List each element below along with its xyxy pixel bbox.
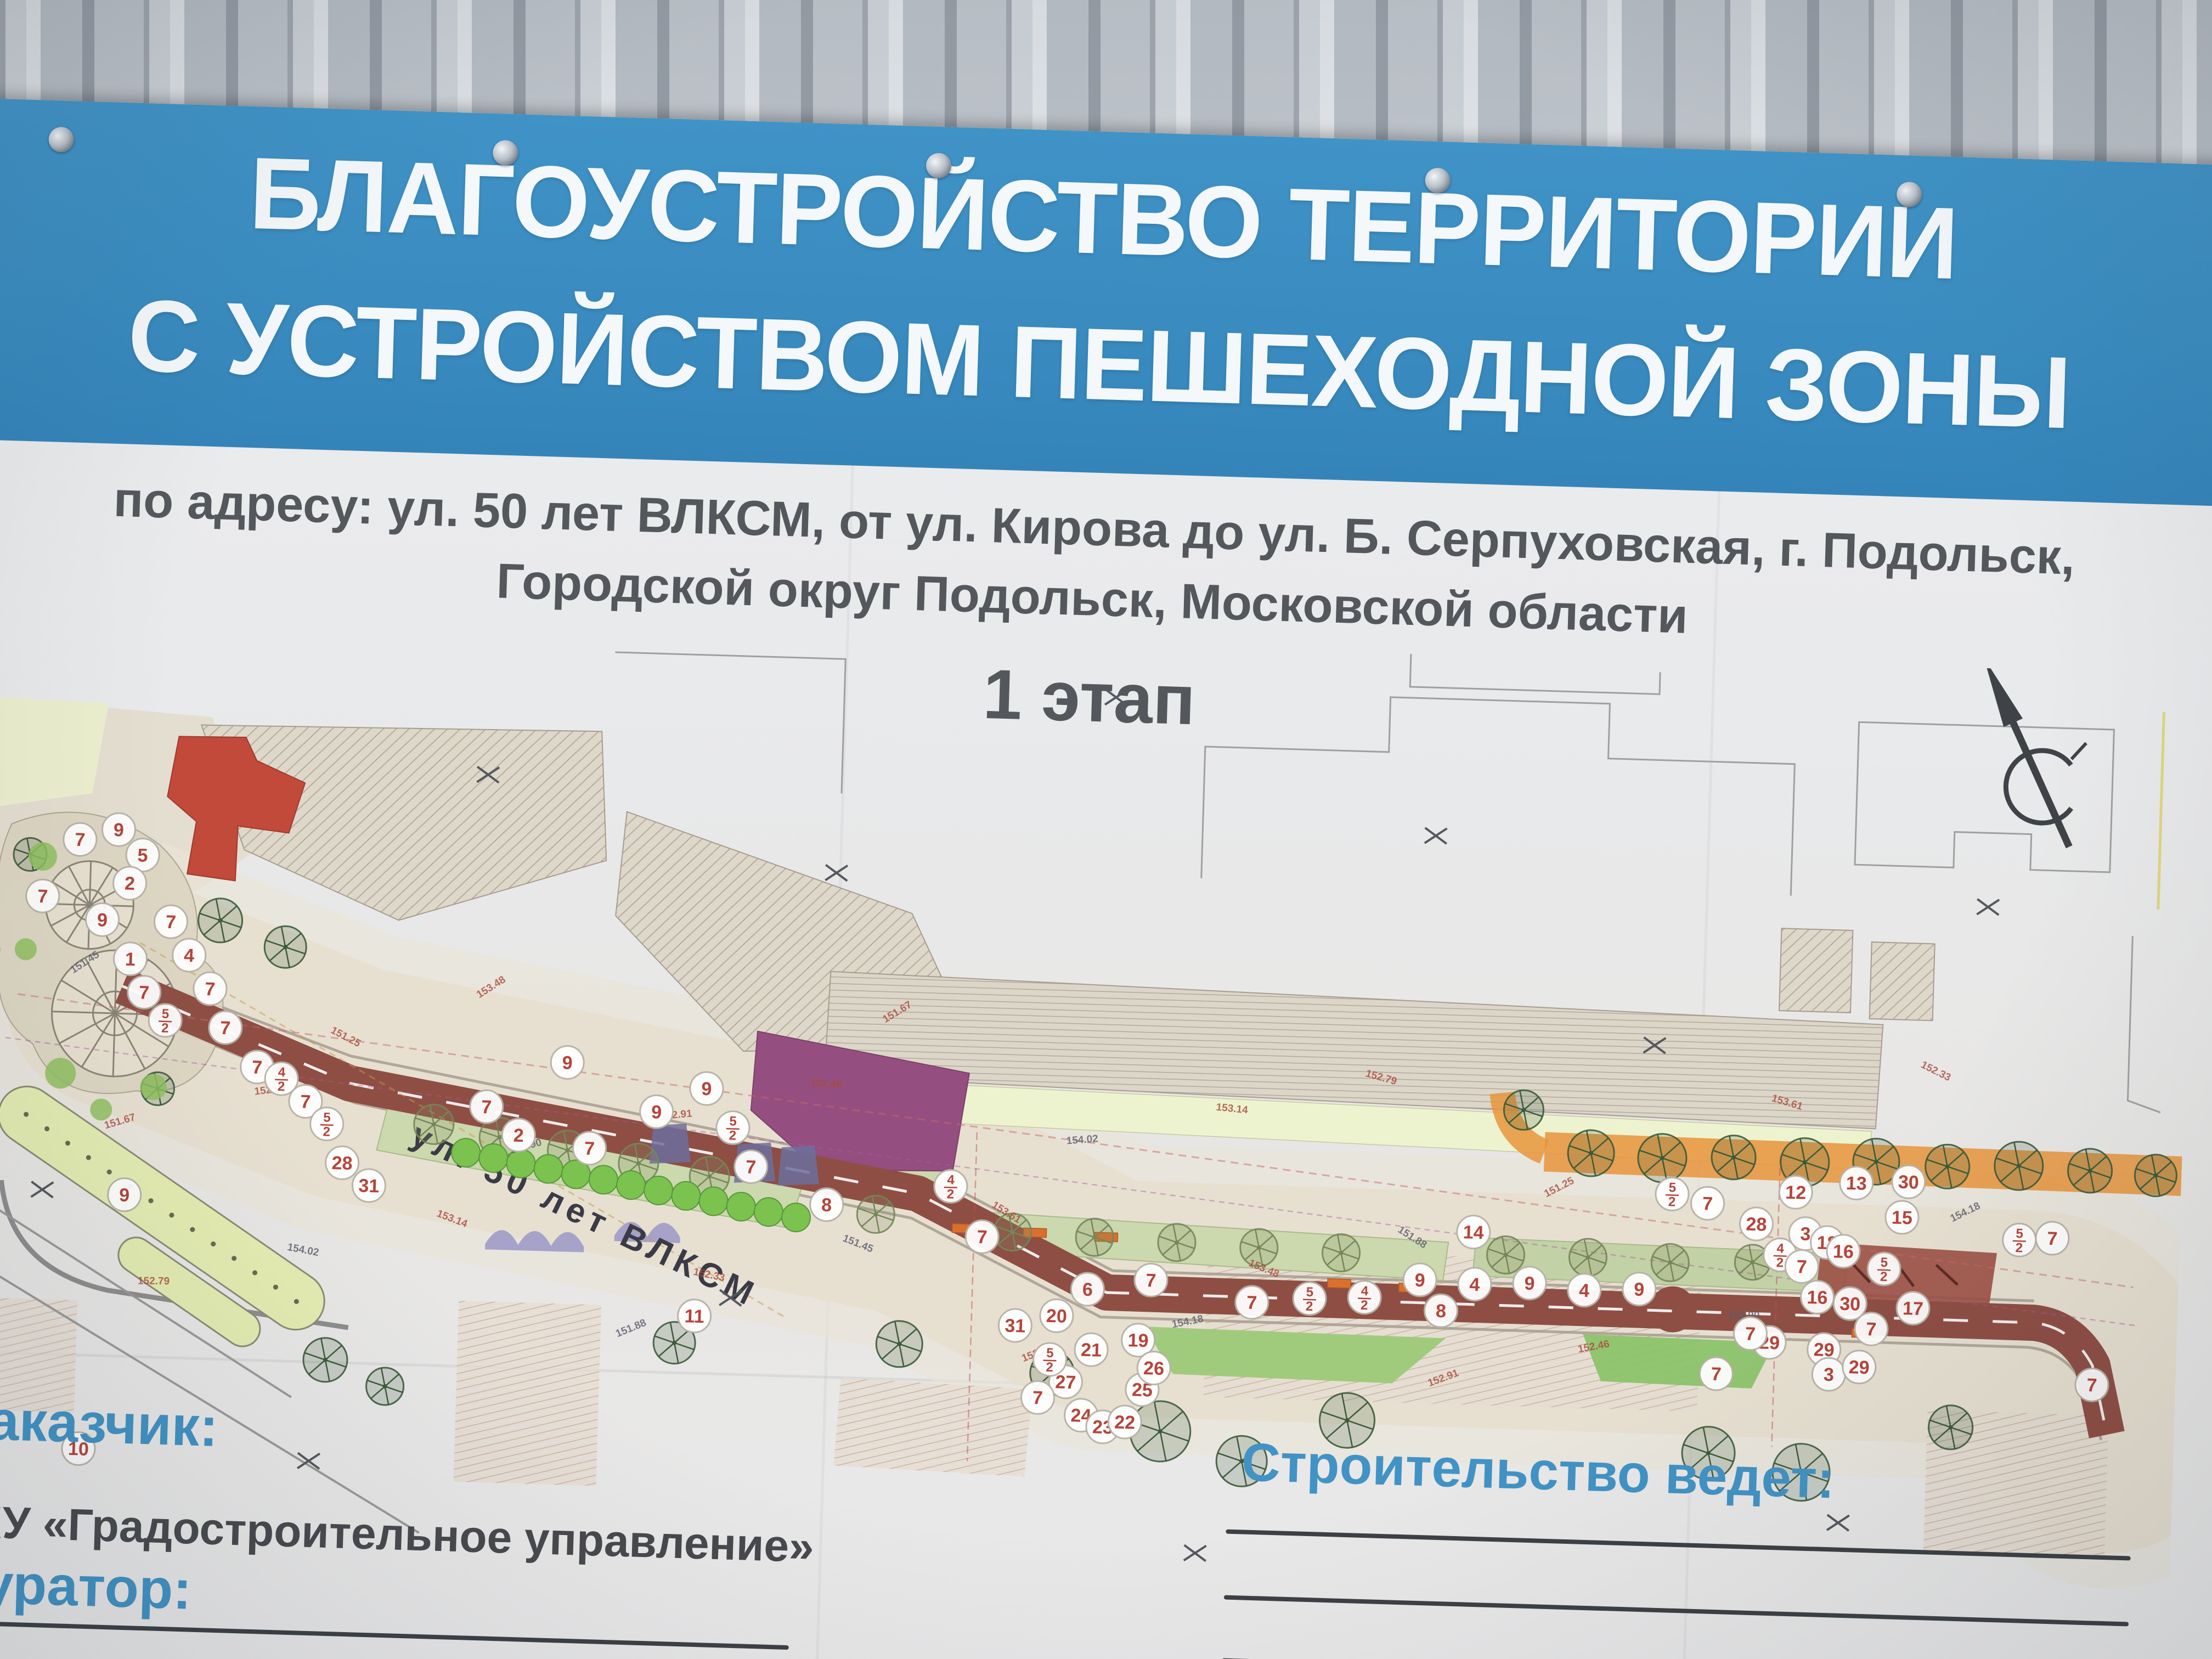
- svg-text:4: 4: [1776, 1241, 1785, 1256]
- plan-marker: 8: [1424, 1294, 1458, 1328]
- survey-cross-icon: [1425, 828, 1447, 844]
- plan-marker: 4: [1458, 1267, 1492, 1301]
- tree-icon: [1925, 1144, 1970, 1189]
- tree-icon: [264, 926, 307, 968]
- tree-icon: [1994, 1141, 2044, 1191]
- plan-marker: 9: [1513, 1266, 1547, 1300]
- svg-text:2: 2: [323, 1124, 330, 1139]
- plan-marker: 3: [1812, 1357, 1846, 1391]
- svg-text:4: 4: [1579, 1280, 1590, 1302]
- svg-text:7: 7: [1796, 1256, 1807, 1278]
- svg-text:7: 7: [584, 1138, 595, 1160]
- tree-icon: [1487, 1236, 1525, 1274]
- svg-text:2: 2: [278, 1079, 285, 1094]
- bush-icon: [534, 1154, 563, 1184]
- tree-icon: [1567, 1130, 1615, 1177]
- svg-text:2: 2: [1668, 1194, 1675, 1209]
- svg-text:5: 5: [1668, 1180, 1676, 1195]
- svg-text:7: 7: [1711, 1364, 1722, 1385]
- svg-text:7: 7: [1745, 1324, 1756, 1345]
- board-content: БЛАГОУСТРОЙСТВО ТЕРРИТОРИИ С УСТРОЙСТВОМ…: [0, 99, 2211, 1659]
- curator-label: Куратор:: [0, 1551, 193, 1622]
- tree-icon: [876, 1321, 923, 1368]
- svg-text:9: 9: [701, 1079, 712, 1100]
- plan-marker: 7: [1235, 1285, 1269, 1319]
- site-plan: ул. 50 лет ВЛКСМ 151.45152.08153.14151.8…: [0, 609, 2197, 1607]
- svg-text:5: 5: [137, 845, 148, 866]
- tree-icon: [2067, 1148, 2112, 1193]
- svg-text:28: 28: [1746, 1214, 1767, 1235]
- survey-cross-icon: [825, 865, 848, 881]
- tree-icon: [1569, 1238, 1607, 1277]
- bush-icon: [781, 1203, 811, 1232]
- svg-text:2: 2: [2015, 1240, 2023, 1255]
- plan-marker: 7: [965, 1220, 999, 1254]
- svg-text:7: 7: [165, 912, 176, 933]
- tree-icon: [2134, 1154, 2177, 1197]
- svg-text:7: 7: [977, 1227, 988, 1248]
- svg-text:30: 30: [1839, 1294, 1861, 1315]
- bush-icon: [672, 1181, 701, 1211]
- svg-text:7: 7: [481, 1097, 492, 1118]
- svg-text:7: 7: [2047, 1228, 2058, 1250]
- svg-text:19: 19: [1127, 1330, 1149, 1351]
- plan-marker: 2: [113, 866, 147, 900]
- plan-marker: 20: [1040, 1299, 1074, 1333]
- plan-marker: 7: [193, 972, 227, 1006]
- plan-marker: 16: [1801, 1280, 1835, 1314]
- plan-marker: 22: [1108, 1405, 1142, 1439]
- svg-text:20: 20: [1046, 1306, 1067, 1327]
- svg-text:6: 6: [1082, 1279, 1093, 1301]
- plan-marker: 7: [26, 879, 60, 913]
- svg-text:2: 2: [1361, 1298, 1368, 1313]
- svg-text:7: 7: [1145, 1270, 1156, 1291]
- plan-marker: 7: [734, 1150, 768, 1184]
- tree-icon: [303, 1338, 348, 1383]
- plan-marker: 9: [86, 902, 120, 936]
- plan-marker: 7: [127, 975, 161, 1009]
- plan-marker: 52: [2002, 1223, 2036, 1257]
- plan-marker: 7: [1691, 1187, 1725, 1221]
- plan-marker: 7: [154, 905, 188, 939]
- svg-text:2: 2: [1880, 1269, 1888, 1284]
- plan-marker: 52: [716, 1111, 750, 1145]
- plan-marker: 7: [470, 1090, 504, 1124]
- plan-marker: 12: [1779, 1175, 1813, 1209]
- plan-marker: 52: [1293, 1282, 1327, 1316]
- plan-marker: 13: [1839, 1166, 1874, 1200]
- svg-text:7: 7: [205, 979, 216, 1000]
- svg-text:27: 27: [1055, 1372, 1076, 1393]
- tree-icon: [1075, 1218, 1114, 1256]
- svg-text:7: 7: [220, 1018, 231, 1039]
- bush-icon: [589, 1165, 618, 1195]
- svg-text:7: 7: [75, 830, 86, 851]
- elevation-label: 154.02: [1066, 1133, 1099, 1147]
- bush-icon: [616, 1170, 646, 1200]
- plan-marker: 11: [678, 1299, 712, 1333]
- plan-parking: [833, 1378, 1032, 1477]
- plan-marker: 7: [2035, 1221, 2069, 1255]
- plan-marker: 21: [1074, 1333, 1108, 1367]
- north-arrow-icon: [1969, 653, 2089, 851]
- svg-text:2: 2: [513, 1125, 524, 1147]
- plan-marker: 2: [501, 1118, 535, 1152]
- elevation-label: 152.33: [1919, 1059, 1953, 1084]
- tree-icon: [1503, 1090, 1544, 1130]
- svg-text:16: 16: [1807, 1287, 1828, 1308]
- plan-marker: 30: [1892, 1165, 1926, 1199]
- plan-marker: 15: [1885, 1200, 1919, 1234]
- svg-text:1: 1: [125, 949, 136, 970]
- plan-marker: 7: [63, 822, 97, 856]
- svg-text:5: 5: [1880, 1255, 1888, 1270]
- plan-marker: 9: [640, 1095, 674, 1129]
- plan-marker: 52: [1033, 1342, 1067, 1376]
- plan-marker: 1: [114, 942, 148, 976]
- svg-text:29: 29: [1848, 1357, 1870, 1378]
- plan-marker: 29: [1842, 1350, 1876, 1384]
- plan-marker: 9: [550, 1046, 584, 1080]
- bush-icon: [452, 1138, 481, 1167]
- plan-marker: 31: [352, 1169, 386, 1203]
- elevation-label: 154.02: [286, 1242, 320, 1259]
- svg-text:12: 12: [1785, 1182, 1807, 1204]
- survey-cross-icon: [1184, 1545, 1206, 1561]
- svg-text:9: 9: [113, 820, 124, 841]
- bush-icon: [644, 1176, 674, 1205]
- tree-icon: [1711, 1135, 1756, 1180]
- svg-text:4: 4: [1469, 1274, 1480, 1296]
- plan-marker: 6: [1071, 1272, 1105, 1306]
- svg-text:9: 9: [1414, 1270, 1425, 1291]
- tree-icon: [198, 898, 242, 943]
- svg-text:9: 9: [1634, 1279, 1645, 1300]
- svg-text:28: 28: [331, 1153, 353, 1174]
- plan-marker: 7: [1734, 1317, 1768, 1351]
- svg-text:14: 14: [1463, 1222, 1484, 1243]
- plan-marker: 9: [1622, 1272, 1656, 1306]
- plan-marker: 7: [1699, 1357, 1733, 1391]
- plan-marker: 16: [1826, 1234, 1860, 1268]
- survey-cross-icon: [1105, 689, 1127, 705]
- plan-marker: 28: [325, 1146, 359, 1180]
- svg-text:4: 4: [1361, 1284, 1369, 1299]
- plan-marker: 7: [2075, 1368, 2109, 1402]
- svg-text:5: 5: [2016, 1226, 2023, 1241]
- plan-marker: 14: [1457, 1215, 1491, 1249]
- svg-text:7: 7: [252, 1057, 263, 1079]
- tree-icon: [1158, 1223, 1196, 1262]
- plan-marker: 9: [102, 812, 136, 847]
- information-board: БЛАГОУСТРОЙСТВО ТЕРРИТОРИИ С УСТРОЙСТВОМ…: [0, 97, 2212, 1659]
- svg-text:9: 9: [562, 1052, 573, 1074]
- plan-marker: 31: [998, 1308, 1032, 1342]
- svg-text:7: 7: [1866, 1319, 1877, 1340]
- plan-canopy: [485, 1229, 584, 1252]
- svg-text:7: 7: [746, 1156, 757, 1178]
- plan-marker: 28: [1740, 1207, 1774, 1241]
- svg-text:2: 2: [946, 1187, 954, 1201]
- bush-icon: [754, 1198, 783, 1227]
- svg-text:7: 7: [1246, 1293, 1257, 1314]
- plan-marker: 7: [1134, 1263, 1168, 1297]
- svg-text:9: 9: [119, 1184, 130, 1206]
- svg-text:2: 2: [1306, 1299, 1313, 1314]
- svg-text:2: 2: [161, 1021, 169, 1036]
- plan-marker: 52: [148, 1003, 182, 1037]
- svg-text:9: 9: [651, 1102, 662, 1123]
- svg-text:3: 3: [1800, 1223, 1811, 1245]
- svg-text:2: 2: [1046, 1360, 1053, 1375]
- svg-text:22: 22: [1114, 1412, 1136, 1433]
- svg-text:26: 26: [1143, 1358, 1165, 1379]
- svg-text:3: 3: [1823, 1364, 1834, 1386]
- svg-text:31: 31: [1005, 1315, 1026, 1336]
- plan-marker: 9: [1403, 1263, 1437, 1297]
- svg-text:5: 5: [161, 1007, 169, 1022]
- tree-icon: [856, 1195, 895, 1233]
- plan-marker: 42: [934, 1170, 968, 1204]
- plan-marker: 7: [1854, 1312, 1888, 1346]
- svg-text:9: 9: [1524, 1273, 1535, 1295]
- svg-text:5: 5: [729, 1114, 737, 1128]
- customer-label: Заказчик:: [0, 1387, 219, 1459]
- plan-marker: 7: [573, 1131, 607, 1165]
- svg-text:4: 4: [947, 1172, 955, 1187]
- svg-text:5: 5: [1306, 1285, 1313, 1300]
- svg-text:30: 30: [1898, 1172, 1919, 1193]
- bush-icon: [699, 1187, 729, 1216]
- tree-icon: [1928, 1405, 1973, 1450]
- plan-marker: 4: [172, 938, 206, 972]
- svg-text:7: 7: [300, 1091, 311, 1113]
- svg-text:5: 5: [1046, 1346, 1054, 1361]
- phone-label: Тел.:: [0, 1641, 71, 1659]
- svg-text:15: 15: [1891, 1207, 1912, 1228]
- svg-text:2: 2: [125, 873, 136, 895]
- plan-marker: 7: [1785, 1250, 1819, 1284]
- plan-marker: 52: [310, 1107, 344, 1141]
- plan-marker: 26: [1137, 1351, 1171, 1385]
- plan-marker: 17: [1896, 1291, 1930, 1325]
- bush-icon: [726, 1192, 756, 1222]
- plan-marker: 4: [1567, 1273, 1601, 1307]
- photo-of-construction-board: БЛАГОУСТРОЙСТВО ТЕРРИТОРИИ С УСТРОЙСТВОМ…: [0, 0, 2212, 1659]
- plan-marker: 8: [810, 1188, 844, 1222]
- svg-text:2: 2: [729, 1128, 736, 1143]
- tree-icon: [414, 1104, 454, 1144]
- plan-building-hatched: [1779, 928, 1853, 1013]
- svg-text:17: 17: [1903, 1298, 1924, 1319]
- plan-marker: 42: [1347, 1280, 1381, 1314]
- plan-marker: 7: [208, 1011, 242, 1045]
- tree-icon: [1651, 1243, 1689, 1282]
- plan-marker: 52: [1655, 1177, 1689, 1211]
- svg-text:21: 21: [1081, 1340, 1102, 1361]
- svg-text:7: 7: [37, 886, 48, 907]
- svg-text:16: 16: [1833, 1241, 1854, 1262]
- svg-text:4: 4: [184, 945, 195, 967]
- bush-icon: [479, 1143, 509, 1173]
- survey-cross-icon: [1977, 899, 1999, 915]
- plan-marker: 9: [108, 1178, 142, 1212]
- svg-text:2: 2: [1776, 1255, 1784, 1270]
- svg-text:31: 31: [358, 1175, 380, 1197]
- svg-text:7: 7: [1032, 1387, 1043, 1409]
- survey-cross-icon: [31, 1182, 54, 1198]
- svg-text:7: 7: [2086, 1375, 2097, 1396]
- plan-marker: 7: [1021, 1380, 1055, 1414]
- svg-text:4: 4: [278, 1065, 286, 1080]
- plan-building-hatched: [1870, 942, 1935, 1020]
- plan-marker: 52: [1867, 1252, 1901, 1286]
- tree-icon: [366, 1367, 404, 1406]
- svg-text:7: 7: [1702, 1193, 1713, 1215]
- tree-icon: [1638, 1133, 1688, 1183]
- svg-text:13: 13: [1846, 1173, 1867, 1194]
- curator-line: [0, 1620, 789, 1650]
- plan-marker: 9: [690, 1071, 724, 1105]
- tree-icon: [1322, 1234, 1361, 1272]
- svg-text:7: 7: [139, 982, 150, 1003]
- plan-utility-yellow: [2158, 712, 2164, 910]
- svg-text:5: 5: [323, 1110, 331, 1125]
- survey-cross-icon: [1827, 1515, 1849, 1531]
- svg-text:8: 8: [1435, 1301, 1446, 1322]
- elevation-label: 151.88: [614, 1317, 648, 1340]
- svg-text:11: 11: [684, 1306, 704, 1327]
- plan-parking: [453, 1301, 601, 1486]
- svg-text:8: 8: [821, 1194, 832, 1216]
- svg-text:9: 9: [97, 910, 108, 931]
- elevation-label: 152.79: [138, 1276, 170, 1288]
